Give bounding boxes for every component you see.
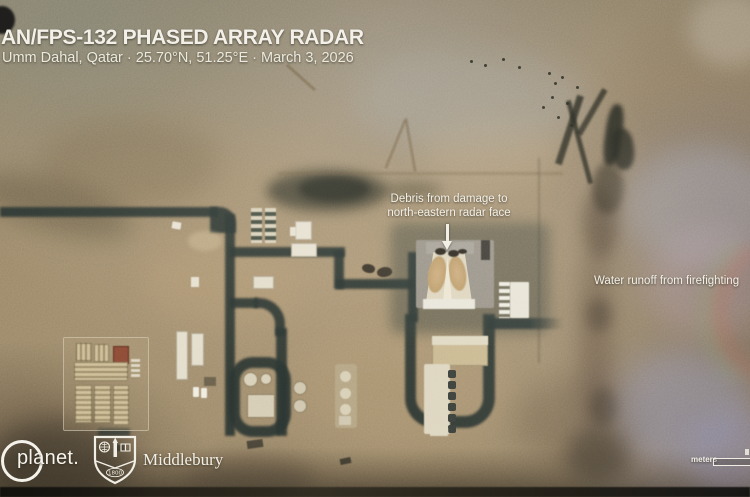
scalebar [713, 458, 750, 466]
scalebar-value-partial-mark [745, 449, 749, 455]
middlebury-shield-icon: 1800 [92, 435, 138, 485]
debris-annotation-line2: north-eastern radar face [365, 207, 533, 221]
middlebury-wordmark: Middlebury [143, 450, 223, 470]
satellite-image-frame: AN/FPS-132 PHASED ARRAY RADAR Umm Dahal,… [0, 0, 750, 497]
bottom-shadow-band [0, 487, 750, 497]
photo-sheen [0, 0, 750, 497]
debris-annotation-line1: Debris from damage to [365, 193, 533, 207]
planet-logo-text: planet. [17, 447, 79, 470]
runoff-annotation: Water runoff from firefighting [594, 275, 739, 287]
debris-arrow [446, 224, 449, 242]
middlebury-shield-year: 1800 [108, 471, 122, 477]
page-subtitle: Umm Dahal, Qatar · 25.70°N, 51.25°E · Ma… [2, 50, 354, 66]
debris-arrowhead [442, 241, 452, 250]
page-title: AN/FPS-132 PHASED ARRAY RADAR [1, 26, 364, 50]
debris-annotation: Debris from damage to north-eastern rada… [365, 193, 533, 220]
